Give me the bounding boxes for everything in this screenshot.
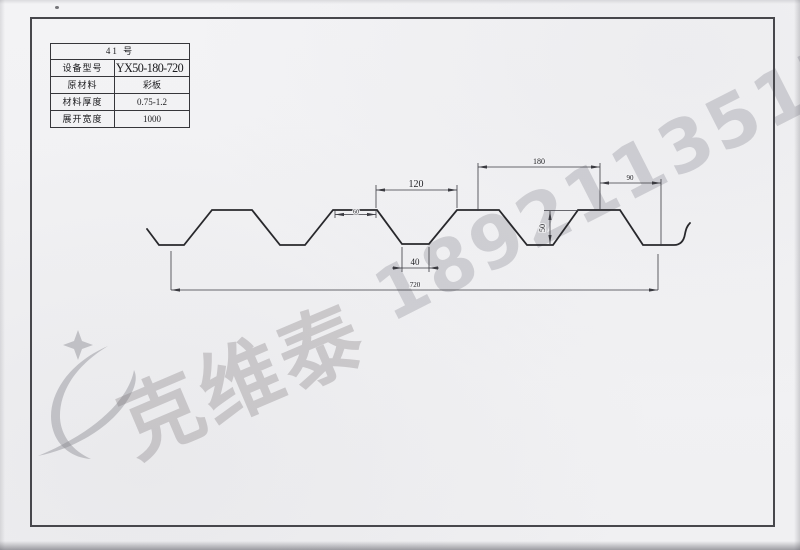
dim-180-label: 180 [533, 157, 545, 166]
scan-artifact-dot [55, 6, 59, 9]
dim-50-label: 50 [538, 224, 547, 232]
dim-height-50: 50 [538, 211, 597, 245]
scanned-page: 克维泰 18921135170 41 号 设备型号 YX50-180-720 原… [0, 0, 800, 550]
dim-90-label: 90 [627, 174, 635, 182]
dim-60-label: 60 [353, 210, 359, 216]
dim-valley-40: 40 [392, 247, 439, 272]
sheet-profile-path [147, 210, 690, 245]
scan-edge-top [0, 0, 800, 4]
scan-edge-right [794, 0, 800, 550]
dim-40-label: 40 [411, 257, 421, 267]
scan-edge-bottom [0, 541, 800, 550]
dim-720-label: 720 [410, 281, 421, 289]
dim-opening-120: 120 [376, 179, 457, 208]
profile-drawing-svg: 120 60 40 180 90 [0, 0, 800, 550]
dim-pitch-180: 180 [478, 157, 600, 211]
dim-120-label: 120 [409, 179, 424, 190]
scan-edge-left [0, 0, 5, 550]
